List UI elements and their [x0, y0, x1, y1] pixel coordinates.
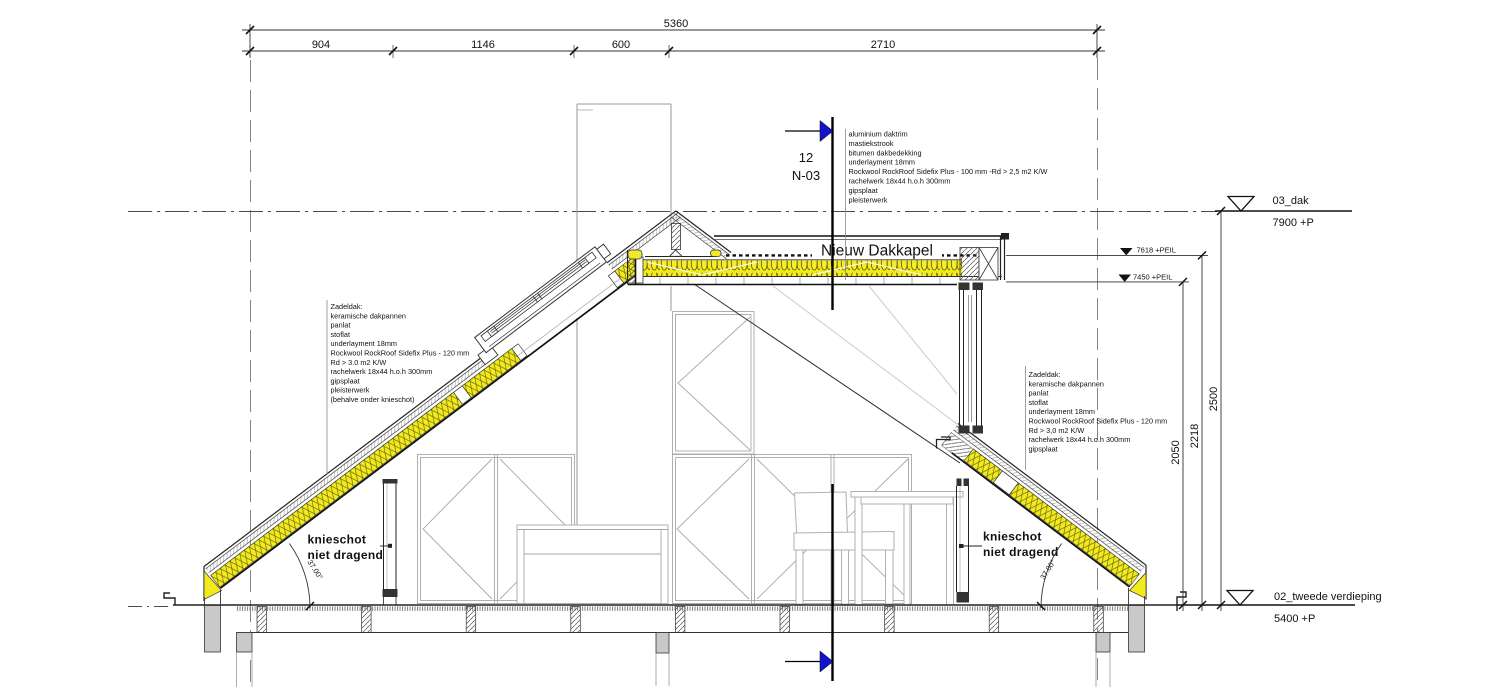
svg-text:Rockwool RockRoof Sidefix Plus: Rockwool RockRoof Sidefix Plus - 100 mm …: [849, 167, 1048, 176]
svg-text:underlayment 18mm: underlayment 18mm: [1029, 407, 1096, 416]
svg-text:904: 904: [312, 39, 330, 51]
svg-text:1146: 1146: [471, 39, 495, 51]
svg-text:2218: 2218: [1189, 424, 1201, 448]
svg-text:niet dragend: niet dragend: [983, 545, 1059, 559]
svg-text:Rd > 3,0 m2 K/W: Rd > 3,0 m2 K/W: [1029, 426, 1085, 435]
svg-text:mastiekstrook: mastiekstrook: [849, 139, 894, 148]
svg-text:rachelwerk 18x44 h.o.h 300mm: rachelwerk 18x44 h.o.h 300mm: [1029, 435, 1131, 444]
svg-text:niet dragend: niet dragend: [308, 548, 384, 562]
svg-text:Rockwool RockRoof Sidefix Plus: Rockwool RockRoof Sidefix Plus - 120 mm: [1029, 417, 1168, 426]
svg-text:stoflat: stoflat: [1029, 398, 1048, 407]
svg-text:7450 +PEIL: 7450 +PEIL: [1133, 273, 1172, 282]
svg-text:600: 600: [612, 39, 630, 51]
svg-text:5360: 5360: [664, 18, 688, 30]
svg-text:keramische dakpannen: keramische dakpannen: [331, 311, 406, 320]
svg-text:gipsplaat: gipsplaat: [1029, 444, 1058, 453]
svg-text:pleisterwerk: pleisterwerk: [849, 195, 888, 204]
svg-text:2050: 2050: [1170, 440, 1182, 464]
svg-text:(behalve onder knieschot): (behalve onder knieschot): [331, 395, 415, 404]
svg-text:knieschot: knieschot: [983, 530, 1042, 544]
svg-text:2500: 2500: [1208, 387, 1220, 411]
svg-text:7900 +P: 7900 +P: [1273, 217, 1314, 229]
svg-text:12: 12: [799, 150, 813, 165]
svg-text:bitumen dakbedekking: bitumen dakbedekking: [849, 148, 922, 157]
svg-text:stoflat: stoflat: [331, 330, 350, 339]
svg-text:N-03: N-03: [792, 168, 820, 183]
svg-text:pleisterwerk: pleisterwerk: [331, 386, 370, 395]
svg-text:aluminium daktrim: aluminium daktrim: [849, 130, 908, 139]
svg-text:knieschot: knieschot: [308, 533, 367, 547]
svg-text:2710: 2710: [871, 39, 895, 51]
svg-text:Zadeldak:: Zadeldak:: [1029, 370, 1061, 379]
svg-text:rachelwerk 18x44 h.o.h 300mm: rachelwerk 18x44 h.o.h 300mm: [849, 177, 951, 186]
svg-text:Nieuw Dakkapel: Nieuw Dakkapel: [821, 243, 933, 260]
svg-text:7618 +PEIL: 7618 +PEIL: [1137, 246, 1176, 255]
svg-text:5400 +P: 5400 +P: [1274, 613, 1315, 625]
svg-text:03_dak: 03_dak: [1273, 195, 1310, 207]
svg-text:Rd > 3.0 m2 K/W: Rd > 3.0 m2 K/W: [331, 358, 387, 367]
svg-text:02_tweede verdieping: 02_tweede verdieping: [1274, 591, 1382, 603]
svg-text:underlayment 18mm: underlayment 18mm: [849, 158, 916, 167]
svg-text:gipsplaat: gipsplaat: [849, 186, 878, 195]
svg-text:panlat: panlat: [1029, 389, 1049, 398]
svg-text:rachelwerk 18x44 h.o.h 300mm: rachelwerk 18x44 h.o.h 300mm: [331, 367, 433, 376]
svg-text:underlayment 18mm: underlayment 18mm: [331, 339, 398, 348]
svg-text:keramische dakpannen: keramische dakpannen: [1029, 379, 1104, 388]
svg-text:Zadeldak:: Zadeldak:: [331, 302, 363, 311]
svg-text:Rockwool RockRoof Sidefix Plus: Rockwool RockRoof Sidefix Plus - 120 mm: [331, 349, 470, 358]
svg-text:gipsplaat: gipsplaat: [331, 376, 360, 385]
svg-text:panlat: panlat: [331, 321, 351, 330]
